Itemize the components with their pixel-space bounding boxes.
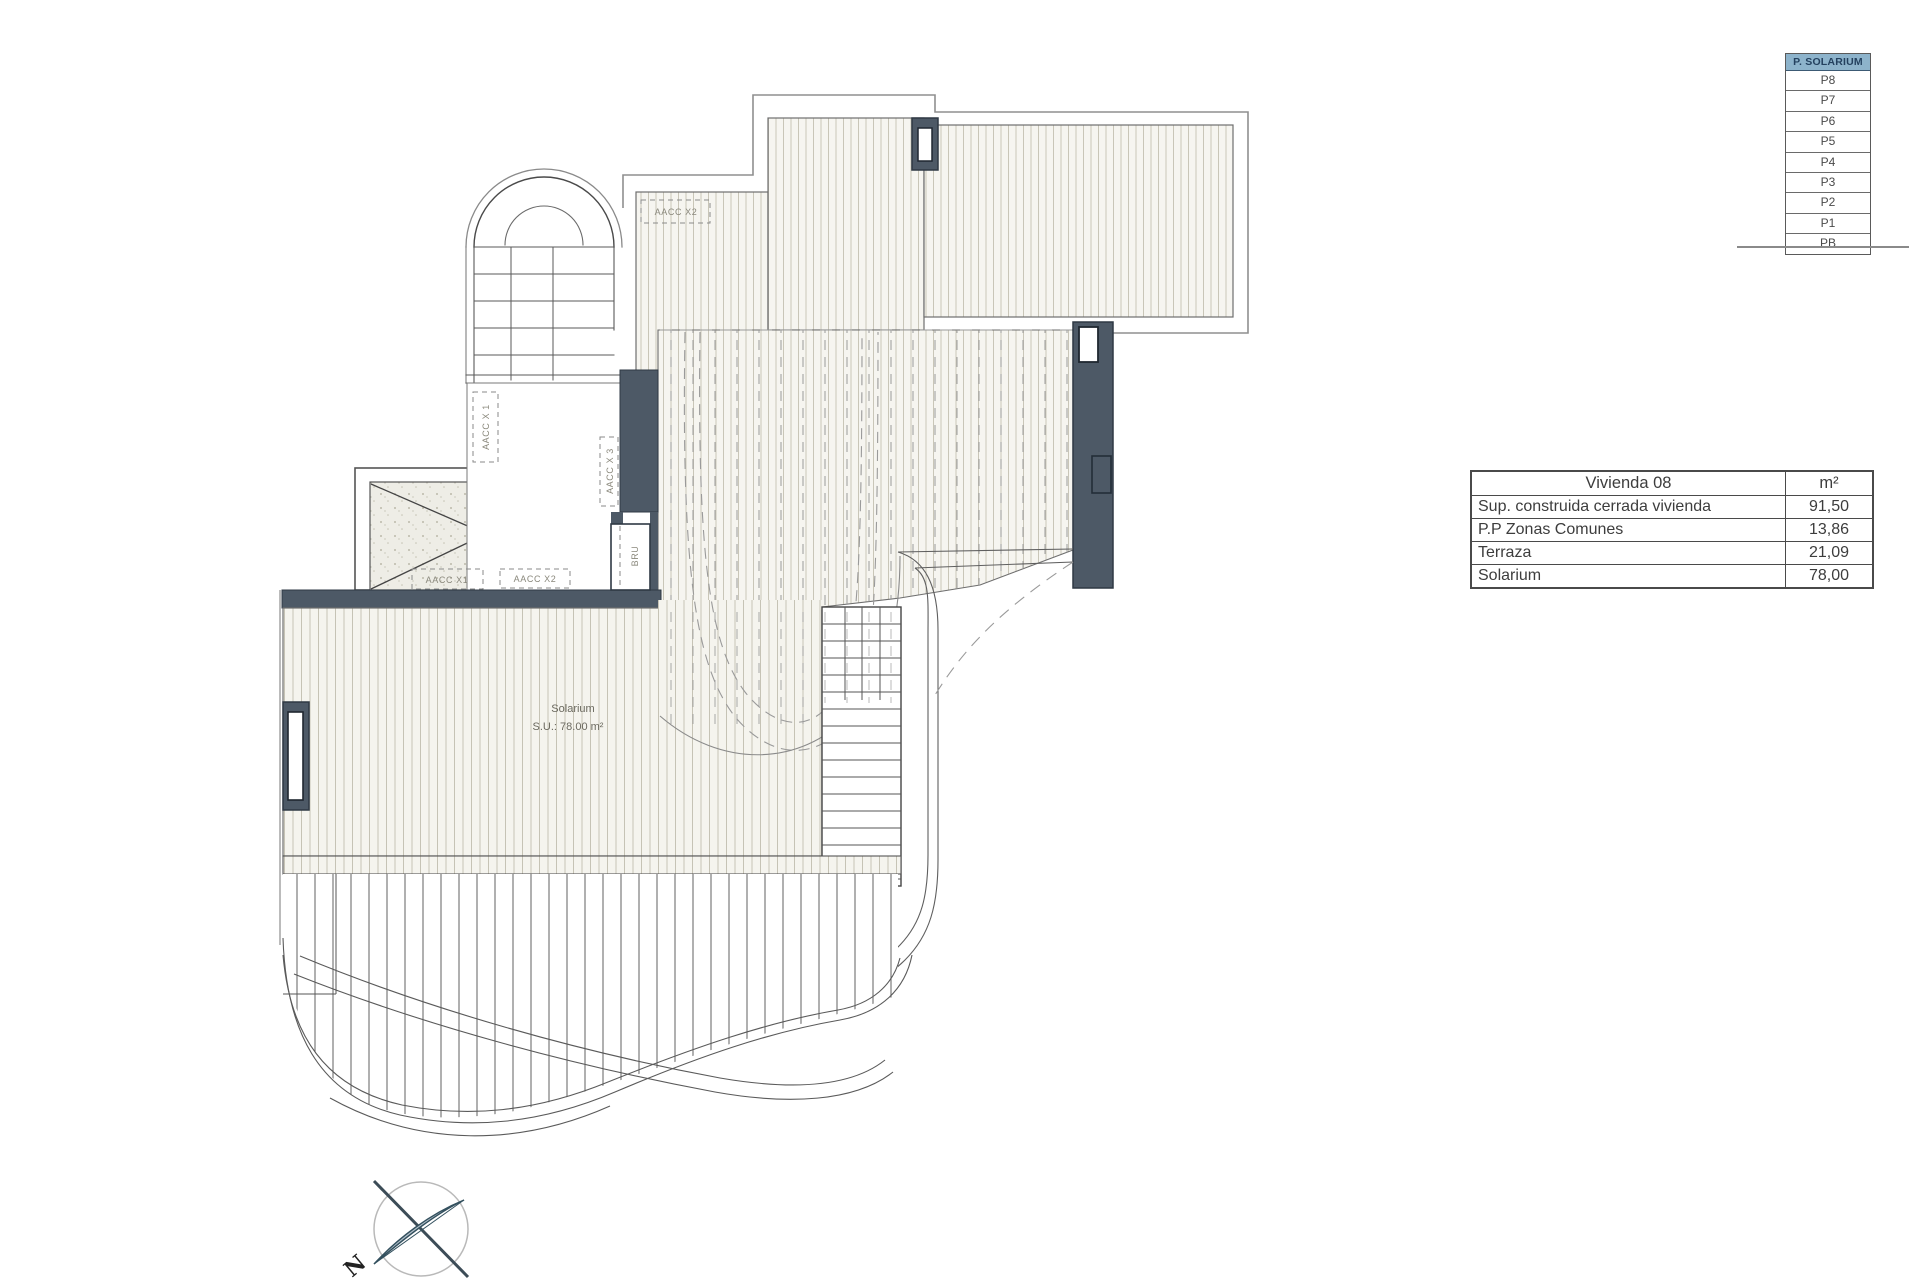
bru-zone: BRU: [611, 524, 650, 590]
table-row: Solarium 78,00: [1472, 564, 1872, 587]
area-row-label: Terraza: [1472, 542, 1785, 564]
area-row-value: 91,50: [1785, 496, 1872, 518]
curved-staircase: [466, 169, 622, 383]
floor-row-p7: P7: [1786, 91, 1870, 111]
floor-row-p1: P1: [1786, 214, 1870, 234]
aacc-x1-left-label: AACC X 1: [481, 404, 491, 450]
solarium-name-label: Solarium: [551, 703, 594, 715]
floor-row-pb: PB: [1786, 234, 1870, 253]
solarium-window: [283, 702, 309, 810]
floor-row-p8: P8: [1786, 71, 1870, 91]
area-table-title: Vivienda 08: [1472, 472, 1785, 495]
aacc-x2-top-label: AACC X2: [655, 207, 698, 217]
floor-row-p6: P6: [1786, 112, 1870, 132]
area-row-value: 21,09: [1785, 542, 1872, 564]
aacc-x3-label: AACC X 3: [605, 448, 615, 494]
table-row: Sup. construida cerrada vivienda 91,50: [1472, 495, 1872, 518]
aacc-x2-bottom-label: AACC X2: [514, 574, 557, 584]
area-row-label: Sup. construida cerrada vivienda: [1472, 496, 1785, 518]
floor-legend: P. SOLARIUM P8 P7 P6 P5 P4 P3 P2 P1 PB: [1785, 53, 1871, 255]
area-table-unit-header: m²: [1785, 472, 1872, 495]
right-wall-door: [1092, 456, 1111, 493]
area-table: Vivienda 08 m² Sup. construida cerrada v…: [1470, 470, 1874, 589]
area-row-label: Solarium: [1472, 565, 1785, 587]
floorplan-sheet: AACC X2: [0, 0, 1920, 1280]
floor-row-p3: P3: [1786, 173, 1870, 193]
aacc-x1-bottom-label: AACC X1: [426, 575, 469, 585]
solarium-area-label: S.U.: 78.00 m²: [533, 721, 604, 733]
floor-row-p4: P4: [1786, 153, 1870, 173]
area-row-label: P.P Zonas Comunes: [1472, 519, 1785, 541]
north-label: N: [339, 1250, 371, 1280]
bru-label: BRU: [630, 546, 640, 567]
floor-row-p2: P2: [1786, 193, 1870, 213]
right-wall-window: [1079, 327, 1098, 362]
table-row: P.P Zonas Comunes 13,86: [1472, 518, 1872, 541]
area-row-value: 78,00: [1785, 565, 1872, 587]
compass-rose: N: [339, 1181, 468, 1280]
lower-staircase: [822, 607, 901, 886]
floor-legend-header: P. SOLARIUM: [1786, 54, 1870, 71]
floor-row-p5: P5: [1786, 132, 1870, 152]
legend-ground-line: [1737, 246, 1909, 248]
upper-terrace-deck: AACC X2: [623, 95, 1248, 607]
roof-chimney: [912, 118, 938, 170]
table-row: Terraza 21,09: [1472, 541, 1872, 564]
floorplan-drawing: AACC X2: [0, 0, 1920, 1280]
right-wall: [1073, 322, 1113, 588]
area-row-value: 13,86: [1785, 519, 1872, 541]
